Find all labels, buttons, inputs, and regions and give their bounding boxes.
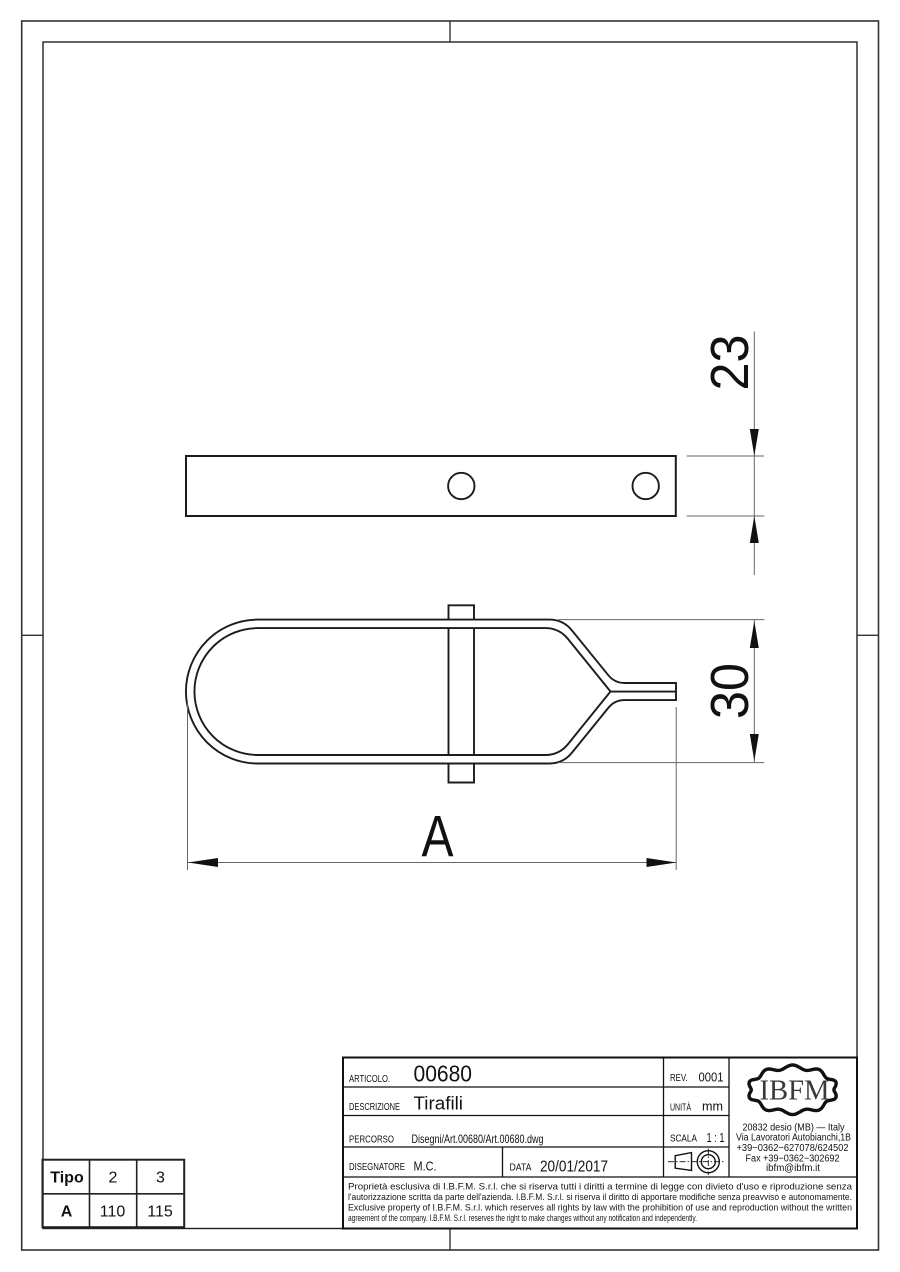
svg-text:Exclusive property of I.B.F.M.: Exclusive property of I.B.F.M. S.r.l. wh…: [348, 1202, 852, 1213]
svg-text:l'autorizzazione scritta da pa: l'autorizzazione scritta da parte dell'a…: [348, 1191, 852, 1202]
svg-text:agreement of the company. I.B.: agreement of the company. I.B.F.M. S.r.l…: [348, 1212, 697, 1223]
svg-text:Proprietà esclusiva di I.B.F.M: Proprietà esclusiva di I.B.F.M. S.r.l. c…: [348, 1181, 853, 1192]
